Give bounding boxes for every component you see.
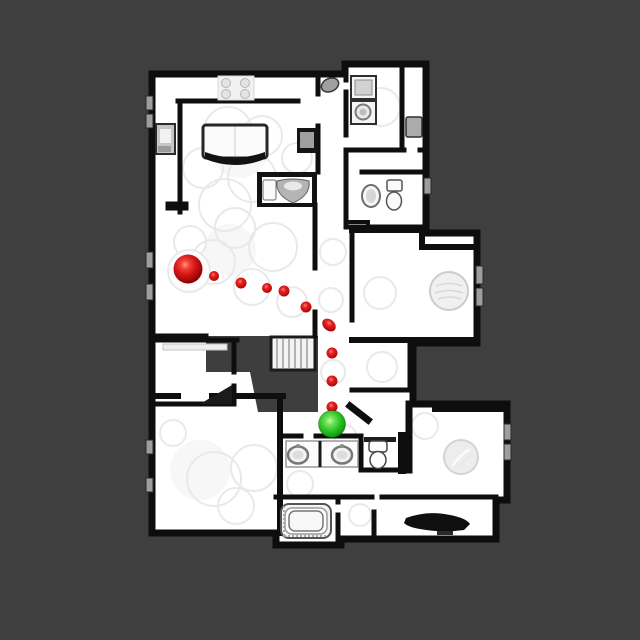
waypoint-dot-2 bbox=[236, 278, 247, 289]
staircase bbox=[271, 337, 315, 370]
pantry-cabinet-icon bbox=[406, 117, 422, 137]
stove-top-icon bbox=[218, 76, 254, 100]
fireplace-icon bbox=[156, 124, 175, 154]
waypoint-dot-7 bbox=[327, 348, 338, 359]
mid-bathroom-basin bbox=[257, 172, 317, 207]
goal-marker bbox=[319, 411, 346, 438]
waypoint-dot-3 bbox=[262, 283, 272, 293]
waypoint-dot-1 bbox=[209, 271, 219, 281]
vanity-sinks bbox=[286, 441, 358, 467]
cabinet-icon bbox=[297, 128, 318, 153]
bathtub-icon bbox=[281, 504, 331, 538]
desk-icon bbox=[163, 344, 227, 350]
navigation-map bbox=[0, 0, 640, 640]
scene-stage bbox=[0, 0, 640, 640]
floor-plan bbox=[146, 64, 511, 545]
waypoint-dot-8 bbox=[327, 376, 338, 387]
waypoint-dot-5 bbox=[301, 302, 312, 313]
couch-icon bbox=[203, 125, 267, 165]
start-marker bbox=[174, 255, 203, 284]
waypoint-dot-4 bbox=[279, 286, 290, 297]
washer-dryer-icon bbox=[351, 76, 376, 124]
